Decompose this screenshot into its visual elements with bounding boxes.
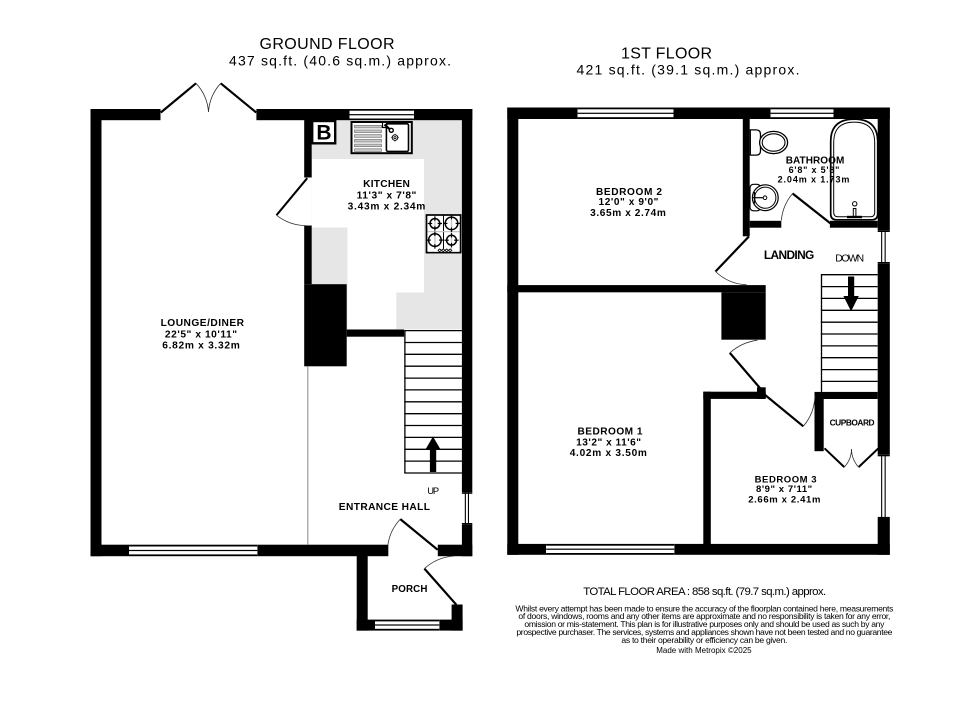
svg-text:GROUND FLOOR: GROUND FLOOR <box>260 36 395 53</box>
svg-text:421 sq.ft. (39.1 sq.m.) approx: 421 sq.ft. (39.1 sq.m.) approx. <box>577 62 800 78</box>
svg-text:Made with Metropix ©2025: Made with Metropix ©2025 <box>656 646 752 655</box>
svg-text:6'8" x 5'8": 6'8" x 5'8" <box>789 165 840 175</box>
svg-text:437 sq.ft. (40.6 sq.m.) approx: 437 sq.ft. (40.6 sq.m.) approx. <box>229 53 451 69</box>
svg-text:LOUNGE/DINER: LOUNGE/DINER <box>161 318 245 329</box>
svg-text:13'2" x 11'6": 13'2" x 11'6" <box>576 437 641 448</box>
svg-text:as to their operability or eff: as to their operability or efficiency ca… <box>621 635 787 645</box>
svg-text:CUPBOARD: CUPBOARD <box>830 418 875 428</box>
svg-text:PORCH: PORCH <box>392 584 428 595</box>
svg-text:LANDING: LANDING <box>764 248 814 262</box>
svg-text:22'5" x 10'11": 22'5" x 10'11" <box>165 329 237 340</box>
svg-text:KITCHEN: KITCHEN <box>363 179 410 190</box>
svg-text:4.02m x 3.50m: 4.02m x 3.50m <box>570 448 647 459</box>
svg-text:DOWN: DOWN <box>835 253 864 264</box>
svg-text:3.43m x 2.34m: 3.43m x 2.34m <box>348 201 426 212</box>
svg-text:ENTRANCE HALL: ENTRANCE HALL <box>339 502 430 513</box>
svg-text:12'0" x 9'0": 12'0" x 9'0" <box>599 197 659 208</box>
svg-text:BEDROOM 1: BEDROOM 1 <box>578 426 643 437</box>
svg-text:3.65m x 2.74m: 3.65m x 2.74m <box>590 208 666 219</box>
svg-text:1ST FLOOR: 1ST FLOOR <box>621 45 712 62</box>
svg-text:TOTAL FLOOR AREA : 858 sq.ft.: TOTAL FLOOR AREA : 858 sq.ft. (79.7 sq.m… <box>583 586 826 598</box>
svg-text:11'3" x 7'8": 11'3" x 7'8" <box>357 190 417 201</box>
svg-text:2.04m x 1.73m: 2.04m x 1.73m <box>778 174 850 184</box>
svg-text:2.66m x 2.41m: 2.66m x 2.41m <box>748 494 820 505</box>
svg-text:6.82m x 3.32m: 6.82m x 3.32m <box>162 340 240 351</box>
svg-text:B: B <box>316 122 331 145</box>
svg-text:UP: UP <box>427 485 439 496</box>
